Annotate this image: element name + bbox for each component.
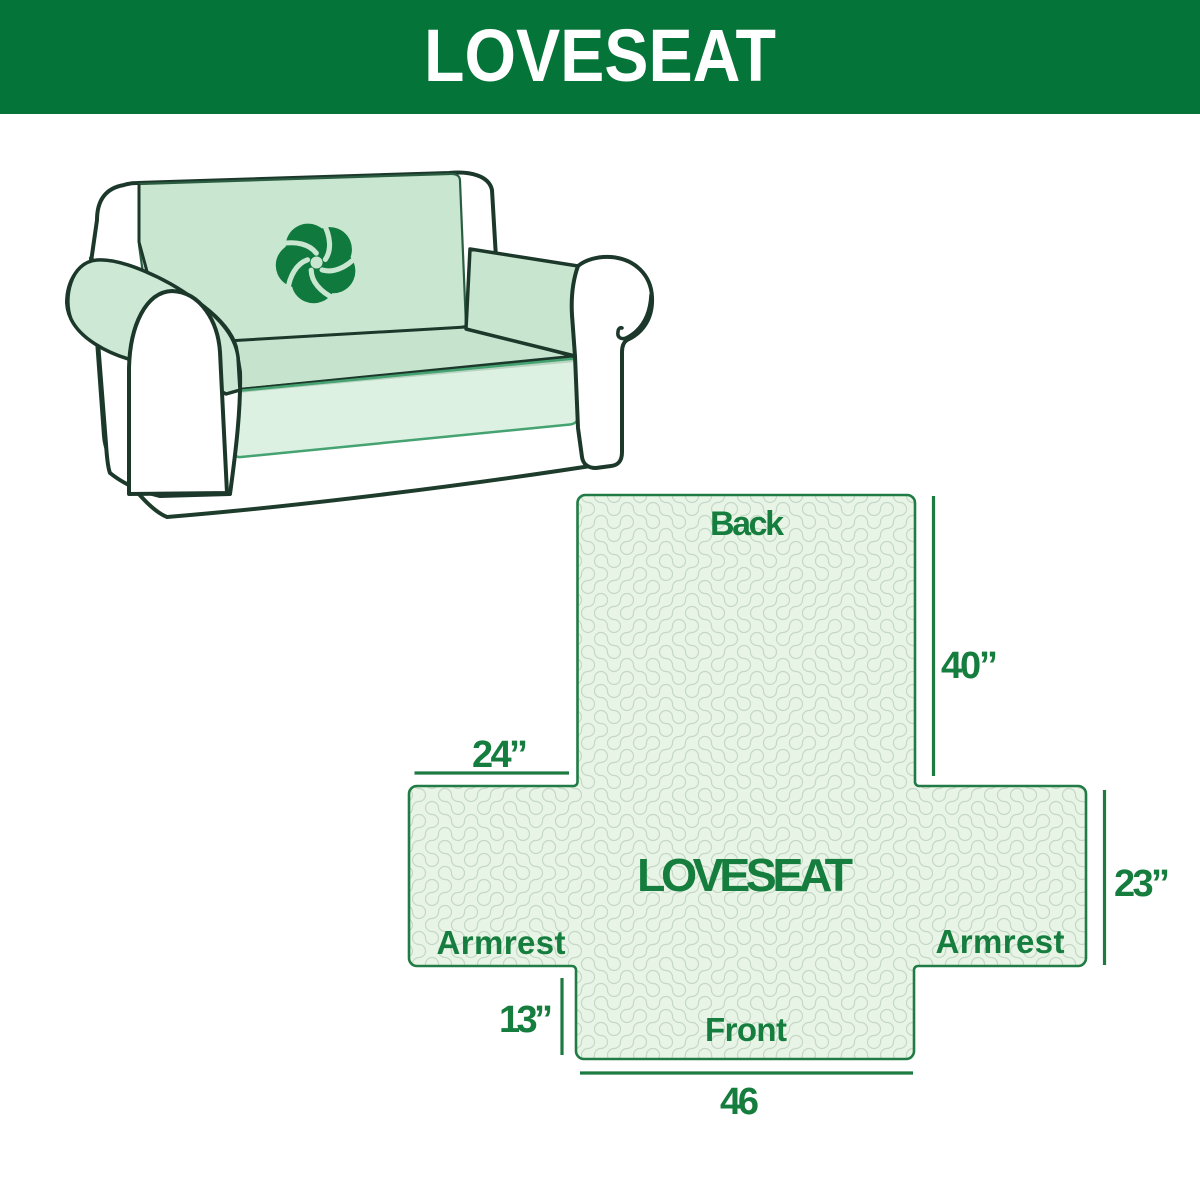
svg-text:Armrest: Armrest [936,923,1065,960]
svg-text:23”: 23” [1114,863,1170,905]
svg-text:40”: 40” [941,645,998,687]
svg-text:Back: Back [710,505,784,543]
svg-text:LOVESEAT: LOVESEAT [424,14,776,97]
svg-text:24”: 24” [472,734,528,776]
svg-text:46: 46 [720,1081,759,1123]
svg-text:LOVESEAT: LOVESEAT [637,849,853,901]
svg-text:13”: 13” [499,999,553,1041]
svg-text:Armrest: Armrest [437,924,566,961]
svg-text:Front: Front [705,1011,787,1048]
